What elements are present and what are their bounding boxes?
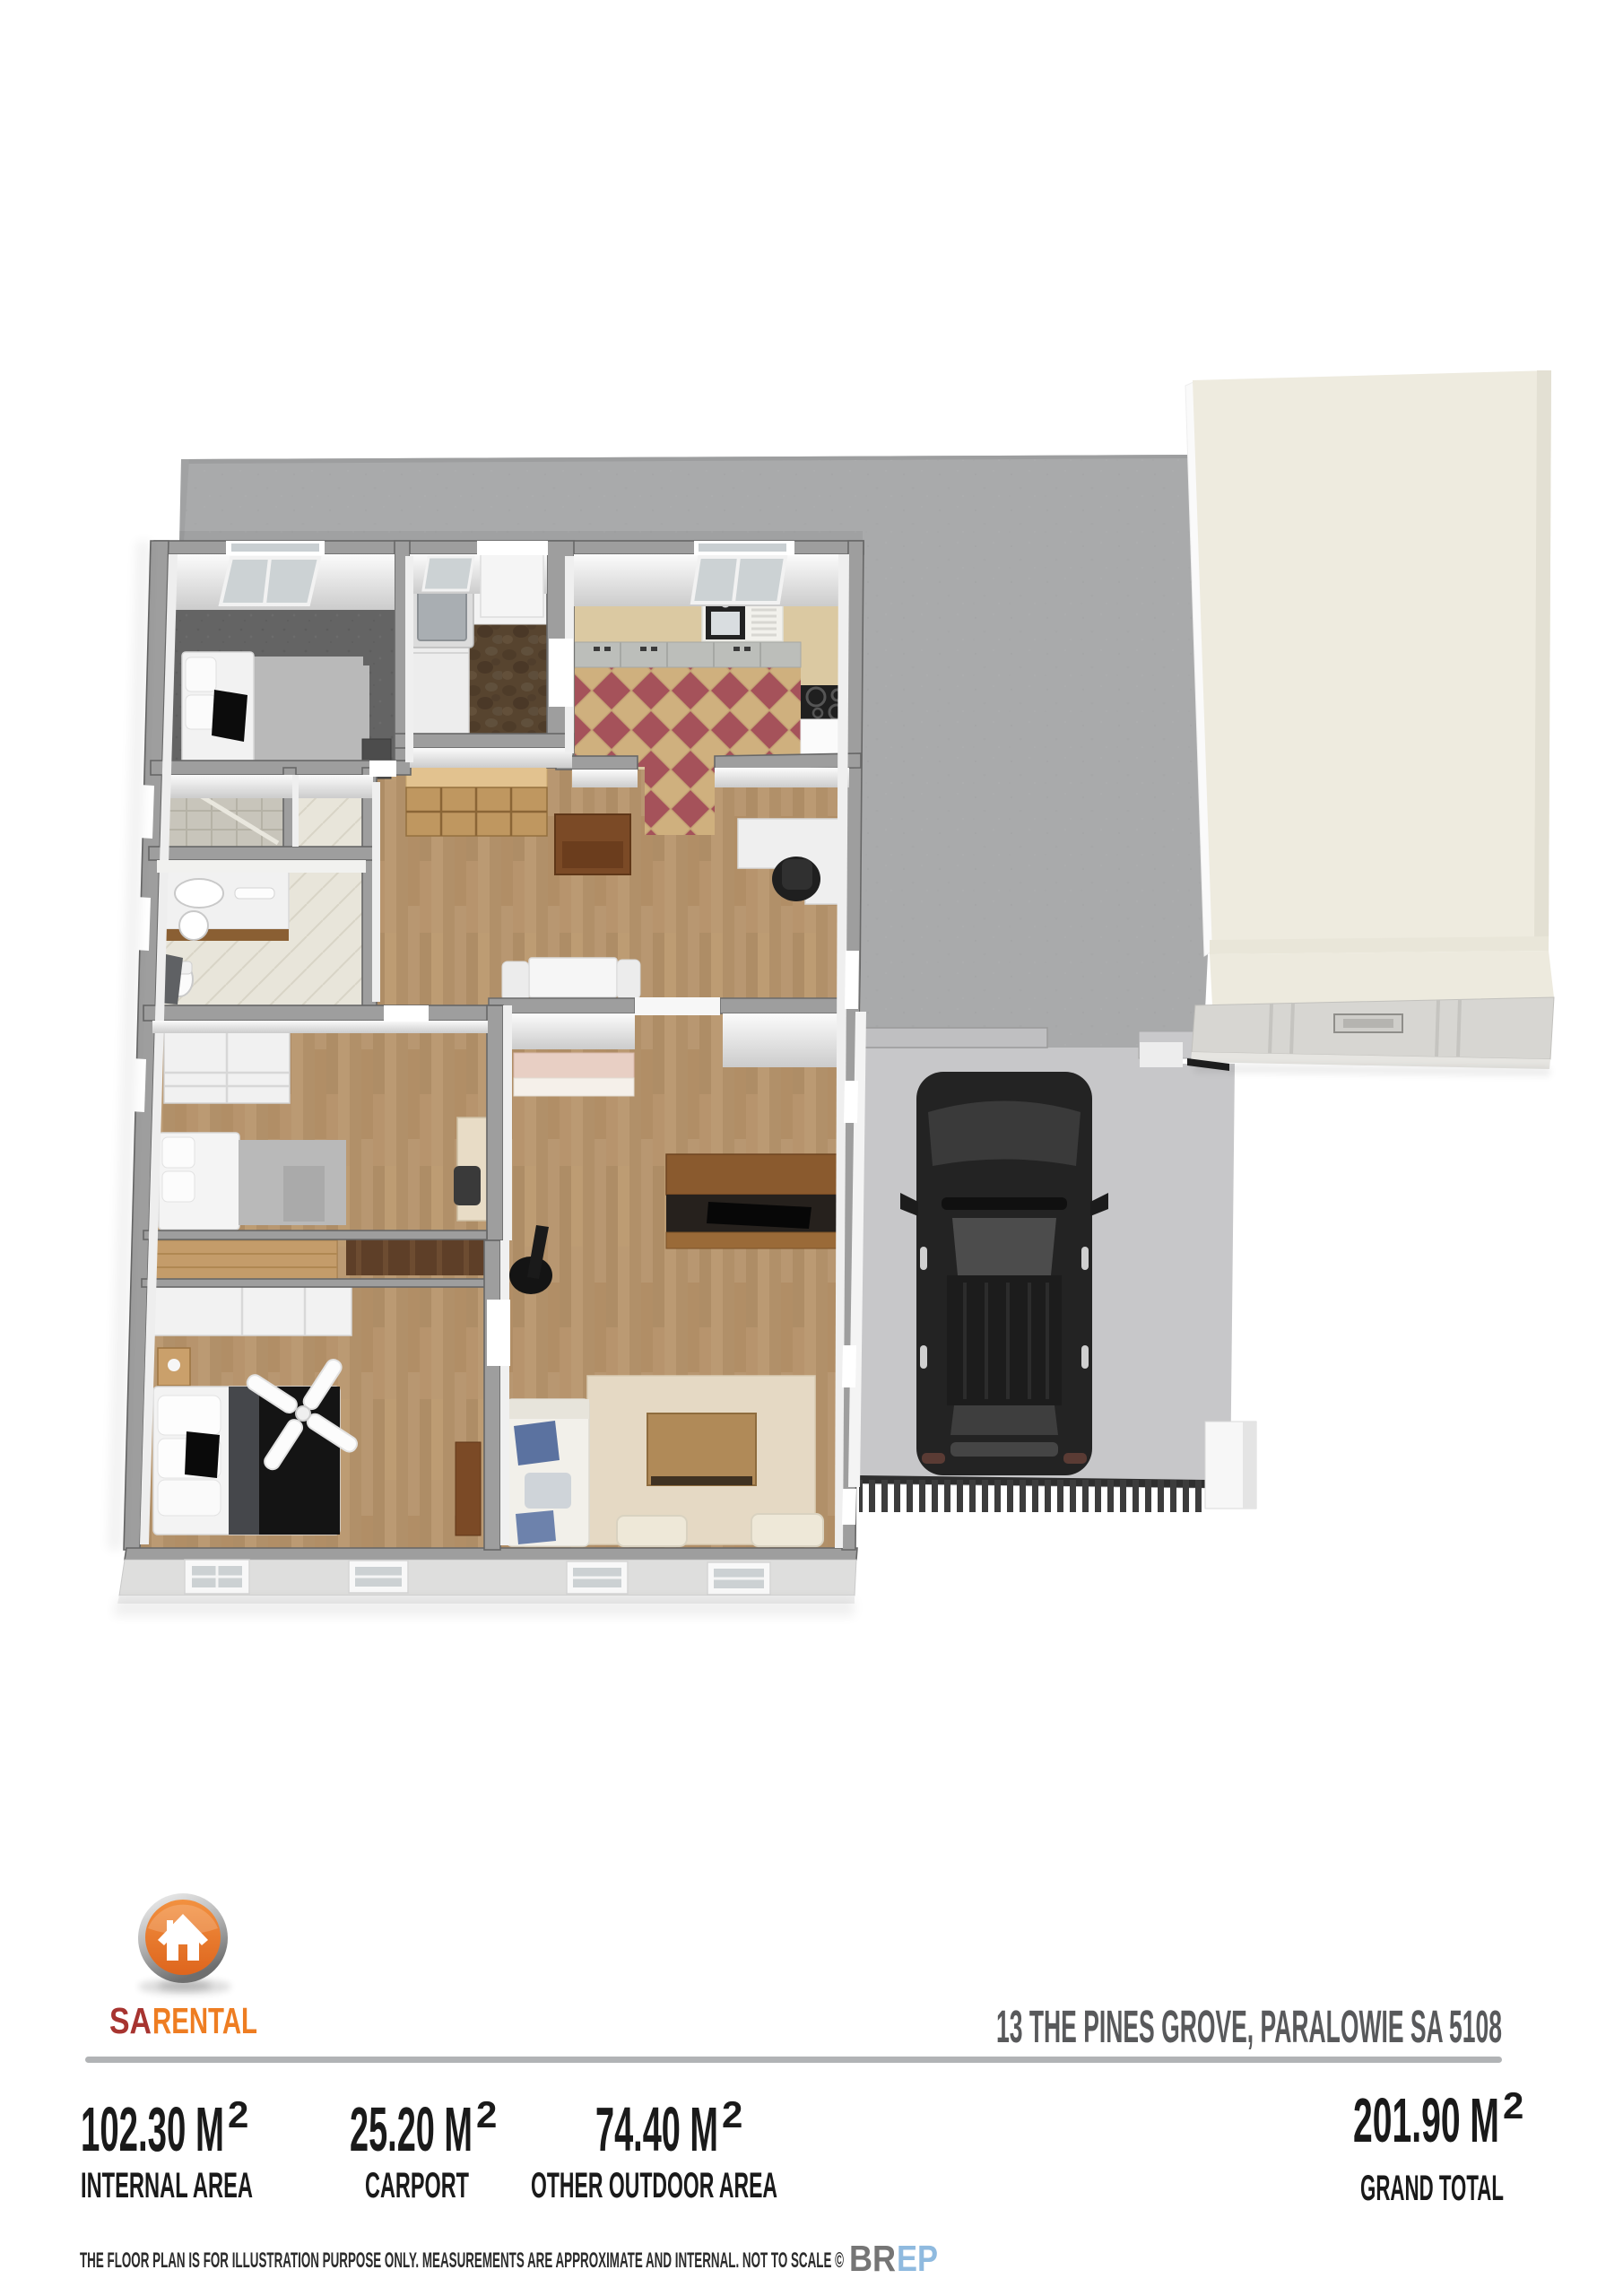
svg-text:2: 2 [1503, 2084, 1523, 2126]
svg-text:BR: BR [849, 2238, 896, 2279]
svg-text:25.20 M: 25.20 M [350, 2094, 473, 2164]
svg-text:201.90 M: 201.90 M [1353, 2085, 1499, 2155]
svg-text:INTERNAL AREA: INTERNAL AREA [81, 2166, 253, 2205]
svg-text:OTHER OUTDOOR AREA: OTHER OUTDOOR AREA [531, 2166, 777, 2205]
svg-text:THE FLOOR PLAN IS FOR ILLUSTRA: THE FLOOR PLAN IS FOR ILLUSTRATION PURPO… [80, 2248, 844, 2273]
svg-text:2: 2 [722, 2093, 742, 2135]
svg-text:SA: SA [109, 2000, 152, 2041]
svg-text:2: 2 [476, 2093, 497, 2135]
svg-text:2: 2 [228, 2093, 248, 2135]
svg-text:EP: EP [897, 2238, 938, 2279]
svg-text:CARPORT: CARPORT [365, 2166, 469, 2205]
svg-text:GRAND TOTAL: GRAND TOTAL [1360, 2169, 1504, 2208]
svg-text:74.40 M: 74.40 M [595, 2094, 718, 2164]
svg-text:102.30 M: 102.30 M [81, 2094, 224, 2164]
svg-text:RENTAL: RENTAL [152, 2000, 257, 2041]
svg-text:13 THE PINES GROVE, PARALOWIE: 13 THE PINES GROVE, PARALOWIE SA 5108 [996, 2001, 1502, 2052]
